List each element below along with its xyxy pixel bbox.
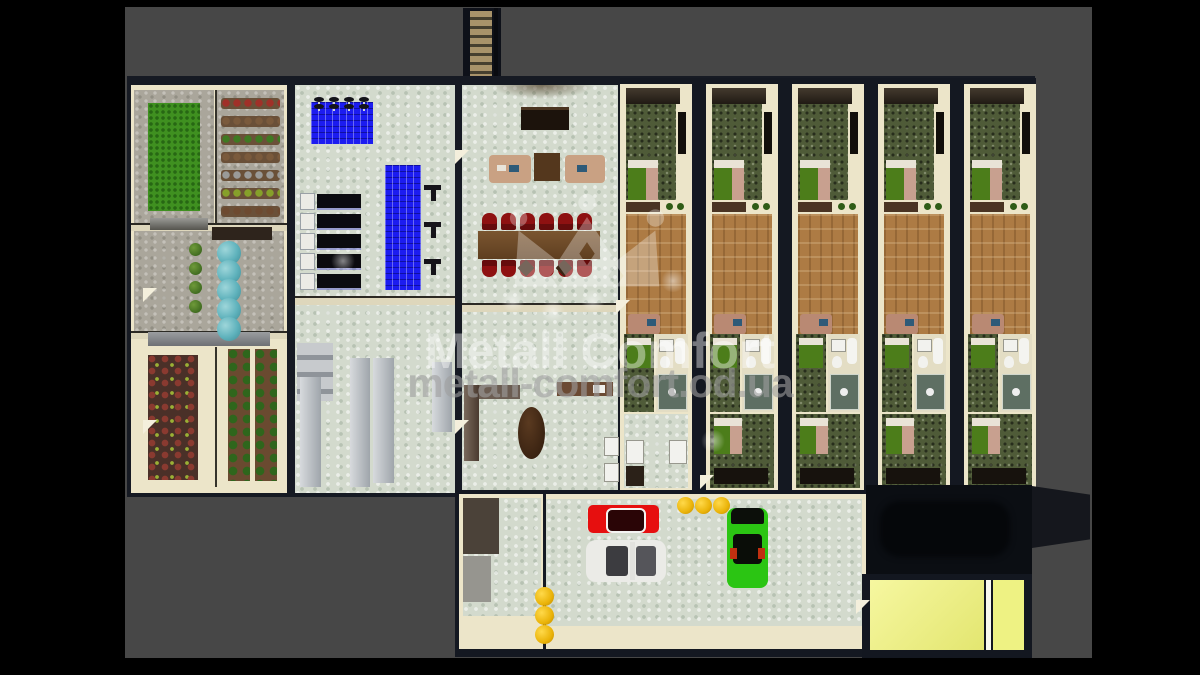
divider-wall [295,296,455,305]
plant-row [221,116,280,127]
barbell-plate [344,104,354,109]
plant-row [221,170,280,181]
cabinet [626,466,644,486]
bed [972,418,1000,454]
shower-head [1012,388,1020,396]
tv-panel [764,112,772,154]
plant-pot [849,203,856,210]
car-stripe [630,542,635,580]
tv-panel [850,112,858,154]
divider-wall [215,90,217,223]
bathtub [1019,338,1029,364]
rack-hook [431,263,436,275]
light-reflection [500,290,526,312]
conference-chair [482,260,497,277]
desk [798,202,832,212]
sofa-pillow [577,165,587,172]
green-car [727,508,768,588]
bed-blanket [904,168,916,200]
barbell [343,95,355,111]
section-dark-hangar [866,485,1032,578]
plant-pot [838,203,845,210]
plant-pot [1010,203,1017,210]
bush [189,300,202,313]
bed-pillow [714,160,744,168]
dresser [886,468,940,484]
bed-blanket [902,426,914,454]
plant-row [221,188,280,199]
dresser [800,468,854,484]
bathroom-sink [604,463,619,482]
divider-wall [986,580,991,650]
tv-panel [678,112,686,154]
potting-table [212,227,272,240]
render-canvas: Metall Comfort metall-comfort.od.ua [0,0,1200,675]
locker-cabinet [463,498,499,554]
oval-table [518,407,545,459]
bathroom [1000,334,1032,412]
bush [189,262,202,275]
tv-panel [1022,112,1030,154]
desk [970,202,1004,212]
light-reflection [540,300,566,322]
plant-row [221,98,280,109]
barbell [358,95,370,111]
bed-pillow [800,418,828,426]
bed-blanket [730,426,742,454]
rack-hook [431,226,436,238]
barbell-plate [329,97,339,102]
plant-pot [677,203,684,210]
desk [884,202,918,212]
bedroom-carpet [796,414,860,488]
bed [972,160,1002,200]
hotel-room-strip [706,84,778,490]
bed-blanket [818,168,830,200]
bed-pillow [972,160,1002,168]
bed-blanket [990,168,1002,200]
grass-bed [148,103,200,211]
toilet [1004,356,1014,368]
sofa [489,155,531,183]
bush [189,281,202,294]
car-seat [758,548,765,559]
plant-row [221,134,280,145]
bed [800,160,830,200]
car-window [636,546,656,576]
bench [317,214,361,228]
plant-row [221,152,280,163]
gray-shelf [463,556,491,602]
barbell-plate [359,97,369,102]
barbell-plate [314,104,324,109]
plant-rows-room [217,90,284,223]
barbell-plate [359,104,369,109]
shower [1002,374,1031,410]
conference-chair [482,213,497,230]
bed-pillow [628,160,658,168]
gym-mat [385,165,421,290]
bed-pillow [886,418,914,426]
bench [317,234,361,248]
bed [800,418,828,454]
barbell [313,95,325,111]
wardrobe [884,88,938,104]
plant-row [221,206,280,217]
bench-stand [300,213,315,230]
light-reflection [700,430,726,452]
white-car [586,540,666,582]
yellow-barrel [535,587,554,606]
sofa-pillow [497,165,506,171]
yellow-barrel [695,497,712,514]
dresser [714,468,768,484]
wardrobe [798,88,852,104]
bed-pillow [886,160,916,168]
bed-blanket [816,426,828,454]
hangar-ramp [1032,486,1090,548]
lit-room [993,580,1024,650]
black-car [880,501,1010,557]
car-cabin [606,508,646,533]
wardrobe [712,88,766,104]
bed-pillow [972,418,1000,426]
car-seat [730,548,737,559]
yellow-barrel [713,497,730,514]
bench-stand [300,273,315,290]
barbell-plate [329,104,339,109]
hotel-room-strip [964,84,1036,490]
tv-panel [936,112,944,154]
divider-wall [215,347,217,487]
sofa-pillow [509,165,519,172]
section-gym-hall [295,85,455,493]
car-window [606,546,628,576]
barbell-plate [314,97,324,102]
section-lit-entrance [862,574,1032,658]
red-car [588,505,659,533]
coffee-table [534,153,560,181]
bush [189,243,202,256]
desk [712,202,746,212]
dresser [972,468,1026,484]
plant-pot [924,203,931,210]
rack-hook [431,189,436,201]
lit-room [870,580,984,650]
sink [669,440,687,464]
bedroom-carpet [968,414,1032,488]
bed-pillow [800,160,830,168]
sink [626,440,644,464]
light-reflection [330,250,356,272]
yellow-barrel [677,497,694,514]
plant-pot [752,203,759,210]
bed [714,160,744,200]
bed [886,160,916,200]
bed-pillow [714,418,742,426]
bedroom-carpet [882,414,946,488]
stair-steps [470,11,492,85]
bed-blanket [988,426,1000,454]
sink [1003,339,1018,352]
barrel-room-floor [134,231,284,331]
hotel-room-strip [878,84,950,490]
wardrobe [970,88,1024,104]
section-garage [455,490,870,657]
work-counter [150,218,208,230]
ceiling-shadow [490,85,594,99]
yellow-barrel [535,606,554,625]
reception-desk [521,107,569,130]
plant-pot [763,203,770,210]
bed-blanket [732,168,744,200]
bench [317,194,361,208]
bedroom-carpet [710,414,774,488]
sofa-pillow [991,319,1000,326]
car-hood [731,508,764,524]
plant-pot [935,203,942,210]
watermark-url: metall-comfort.od.ua [220,360,980,407]
hotel-room-strip [792,84,864,490]
sofa [565,155,605,183]
wardrobe [626,88,680,104]
bench-stand [300,193,315,210]
light-reflection [660,270,686,292]
bed [886,418,914,454]
barbell-plate [344,97,354,102]
light-reflection [580,290,606,312]
plant-pot [1021,203,1028,210]
washroom-floor [624,414,688,488]
crown-icon [503,192,671,298]
yellow-barrel [535,625,554,644]
barbell [328,95,340,111]
bench [317,274,361,288]
bench-stand [300,233,315,250]
bathroom-sink [604,437,619,456]
red-plant-bed [148,355,198,480]
bench-stand [300,253,315,270]
